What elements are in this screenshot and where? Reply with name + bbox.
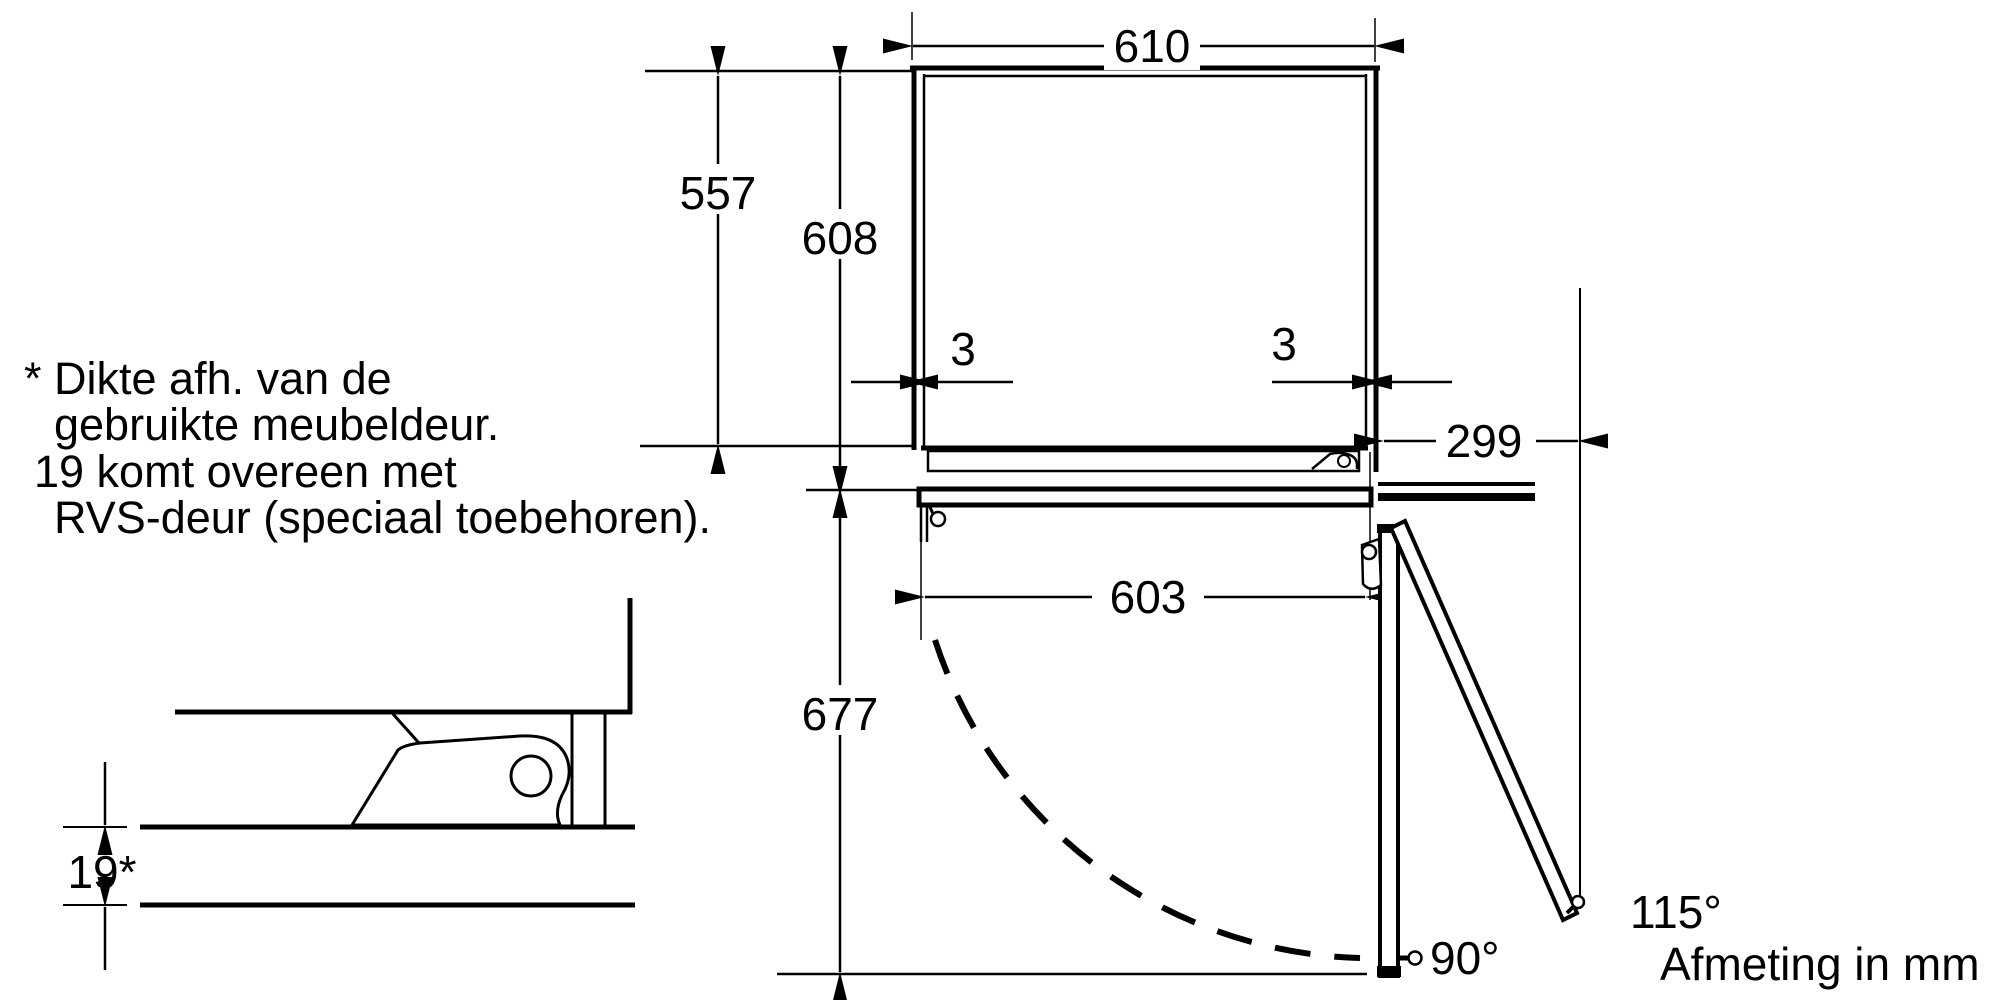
door-90-handle-knob [1409,952,1422,965]
gap-left-label: 3 [950,323,976,375]
dim-19-label: 19* [67,846,136,898]
appliance-body [921,74,1368,448]
door-swing-arc [935,640,1360,958]
note-line-3: 19 komt overeen met [34,446,457,497]
hinge-pivot [1362,545,1376,559]
door-panel [928,451,1359,471]
dim-610: 610 [912,12,1375,72]
dim-gap-left: 3 [851,323,1013,382]
installation-note: * Dikte afh. van de gebruikte meubeldeur… [24,353,711,543]
handle-knob [931,512,945,526]
door-90-body [1380,528,1398,976]
door-115-handle-knob [1572,896,1584,908]
note-line-4: RVS-deur (speciaal toebehoren). [54,492,711,543]
dim-557-label: 557 [680,167,757,219]
adjacent-unit-lines [1378,484,1535,497]
note-line-2: gebruikte meubeldeur. [54,399,499,450]
dim-299-label: 299 [1446,415,1523,467]
dim-608: 608 [778,76,918,490]
installation-diagram: 610 557 608 677 603 3 3 [0,0,2000,1000]
door-open-115 [1391,521,1584,920]
side-detail [140,598,635,905]
gap-right-label: 3 [1271,318,1297,370]
niche-outline [910,66,1380,472]
dim-610-label: 610 [1114,20,1191,72]
door-90-bottom-cap [1377,966,1401,977]
dim-299: 299 [1384,415,1578,467]
diagram-canvas: 610 557 608 677 603 3 3 [0,0,2000,1000]
dim-608-label: 608 [802,212,879,264]
dim-19: 19* [63,762,137,970]
note-line-1: * Dikte afh. van de [24,353,392,404]
dim-603-label: 603 [1110,571,1187,623]
angle-90-label: 90° [1430,932,1500,984]
door-hinge-pin [1338,455,1350,467]
door-open-90 [1377,524,1422,977]
hinge-cup [511,756,551,796]
appliance-door-closed [919,451,1371,542]
door-115-body [1391,521,1577,920]
dim-603: 603 [921,452,1370,640]
dim-gap-right: 3 [1271,318,1452,382]
furniture-door-panel [919,489,1371,505]
dim-677-label: 677 [802,688,879,740]
dim-677: 677 [777,496,1367,974]
angle-115-label: 115° [1630,886,1722,938]
door-hinge-top [1362,539,1381,589]
units-label: Afmeting in mm [1660,938,1980,990]
